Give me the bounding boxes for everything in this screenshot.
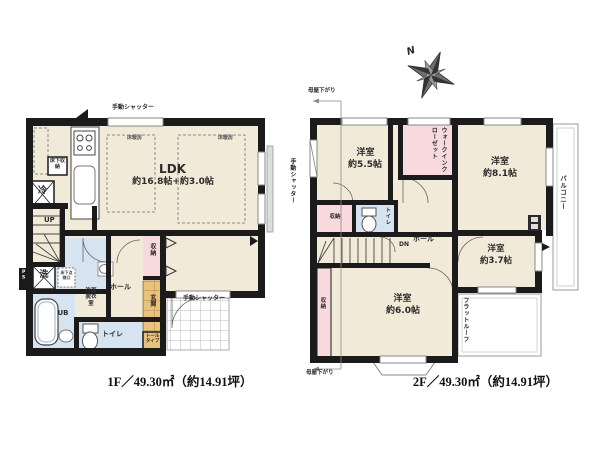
f2-room55-label: 洋室 — [338, 148, 393, 158]
f1-stairs-up-label: UP — [44, 216, 55, 224]
f1-shutter-bottom-label: 手動シャッター — [176, 296, 232, 303]
f2-room55-size: 約5.5帖 — [330, 160, 400, 170]
f1-kitchen-sink — [74, 166, 95, 204]
f2-hall-label: ホール — [413, 235, 434, 243]
f2-moya-bottom-label: 母屋下がり — [306, 370, 334, 376]
f2-flat-roof-label: フラットルーフ — [461, 297, 468, 349]
f2-closet-top-label: 収納 — [318, 214, 352, 220]
f1-porch-tiles — [167, 298, 229, 350]
f1-toilet-bowl — [83, 332, 98, 350]
f2-wic-label: ウォークインクローゼット — [408, 127, 448, 177]
f2-room37-label: 洋室 — [466, 245, 526, 255]
f1-ldk-size-label: 約16.8帖+約3.0帖 — [118, 177, 228, 187]
f2-toilet-tank — [362, 208, 376, 216]
f2-closet-left-label: 収納 — [319, 297, 325, 327]
f1-shutter-rail — [267, 146, 273, 232]
floorplan-drawing — [0, 0, 600, 475]
f2-stairs-down-label: DN — [399, 242, 409, 249]
f2-moya-top-label: 母屋下がり — [308, 88, 336, 94]
f1-floor-heating-label-2: 床暖房 — [218, 136, 233, 142]
f1-shutter-right-label: 手動シャッター — [288, 158, 295, 214]
f1-underfloor-hatch-label: 床下点検口 — [60, 271, 73, 280]
f1-fridge-label: 冷 — [31, 186, 54, 196]
f2-water-heater-unit — [528, 215, 541, 231]
f1-washer-label: 洗 — [35, 270, 53, 280]
f1-bath-label: UB — [51, 309, 75, 317]
f2-caption: 2F／49.30㎡（約14.91坪） — [408, 371, 563, 390]
f1-floor-heating-label-1: 床暖房 — [127, 136, 142, 142]
f1-washroom-label: 洗面脱衣室 — [84, 288, 98, 307]
f1-shutter-top-label: 手動シャッター — [100, 105, 166, 112]
floorplan-canvas: 手動シャッター 手動シャッター 手動シャッター LDK 約16.8帖+約3.0帖… — [0, 0, 600, 475]
floor1-plan — [19, 109, 273, 356]
f1-stove — [74, 131, 95, 155]
f2-room81-label: 洋室 — [470, 157, 530, 167]
f2-room81-size: 約8.1帖 — [463, 169, 537, 179]
f2-room60-size: 約6.0帖 — [368, 306, 438, 316]
f1-ldk-label: LDK — [135, 163, 210, 177]
f1-bath-stool — [59, 330, 73, 342]
f2-flat-roof-inner-line — [462, 298, 537, 352]
f1-closet-label: 収納 — [148, 243, 155, 273]
f1-underfloor-storage-label: 床下収納 — [50, 159, 65, 171]
f1-caption: 1F／49.30㎡（約14.91坪） — [95, 371, 265, 390]
f1-tall-cabinet-label: トールタイプ — [145, 334, 160, 344]
f2-room37-size: 約3.7帖 — [460, 257, 532, 267]
f1-pipe-space-label: PS — [21, 270, 26, 289]
f2-balcony-label: バルコニー — [558, 175, 565, 231]
f1-entrance-label: 玄関 — [148, 294, 155, 322]
f2-room60-label: 洋室 — [375, 294, 430, 304]
f2-flat-roof-outline — [458, 294, 541, 356]
f2-toilet-label: トイレ — [384, 207, 390, 235]
f2-door-flag — [542, 243, 550, 251]
f2-toilet-bowl — [362, 216, 376, 232]
f1-toilet-label: トイレ — [102, 330, 123, 338]
f1-hall-label: ホール — [110, 283, 131, 291]
f1-back-door-mark — [76, 109, 88, 118]
